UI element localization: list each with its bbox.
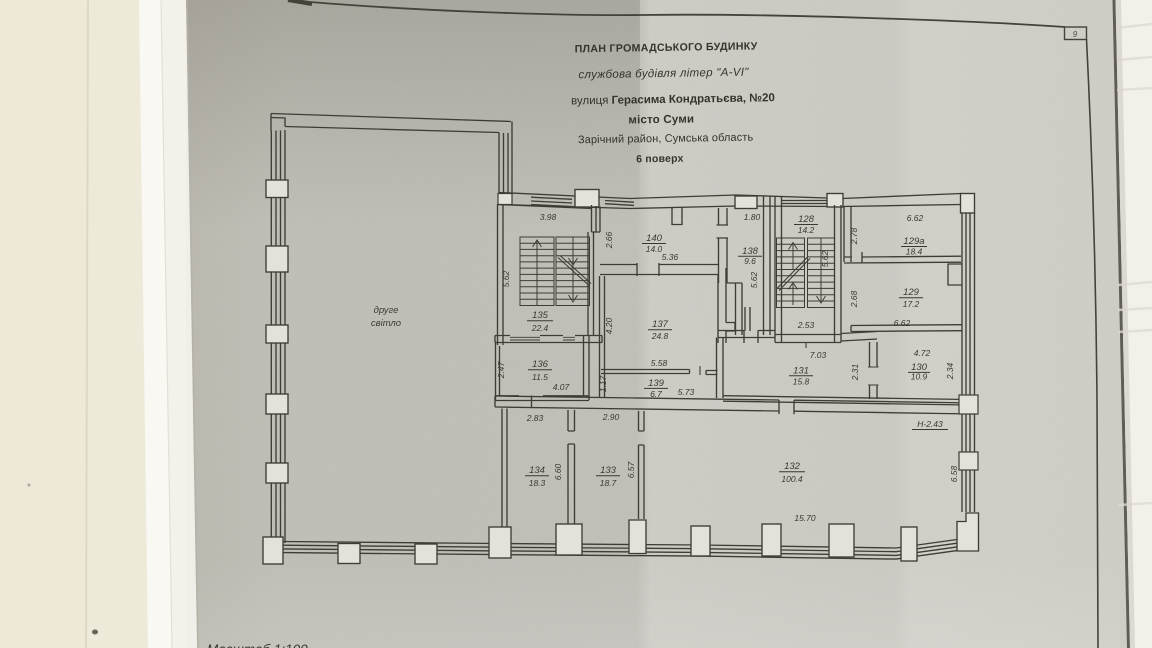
svg-text:100.4: 100.4 bbox=[781, 474, 803, 484]
svg-text:2.66: 2.66 bbox=[604, 231, 614, 249]
svg-text:світло: світло bbox=[371, 318, 401, 329]
svg-text:9: 9 bbox=[1073, 30, 1078, 39]
svg-text:15.70: 15.70 bbox=[794, 513, 816, 523]
svg-text:17.2: 17.2 bbox=[903, 299, 920, 309]
svg-text:місто Суми: місто Суми bbox=[628, 113, 694, 126]
svg-text:2.83: 2.83 bbox=[526, 413, 544, 423]
svg-text:6.7: 6.7 bbox=[650, 389, 662, 399]
svg-text:5.62: 5.62 bbox=[501, 270, 511, 287]
svg-text:137: 137 bbox=[652, 319, 669, 330]
svg-text:2.53: 2.53 bbox=[797, 320, 815, 330]
svg-text:135: 135 bbox=[532, 310, 549, 321]
svg-text:140: 140 bbox=[646, 233, 663, 244]
svg-text:14.0: 14.0 bbox=[646, 244, 663, 254]
svg-text:6 поверх: 6 поверх bbox=[636, 153, 684, 166]
svg-text:5.73: 5.73 bbox=[678, 387, 695, 397]
svg-text:128: 128 bbox=[798, 214, 815, 225]
svg-text:11.5: 11.5 bbox=[532, 372, 548, 382]
svg-text:5.62: 5.62 bbox=[749, 271, 759, 288]
svg-text:2.31: 2.31 bbox=[850, 363, 860, 381]
svg-text:15.8: 15.8 bbox=[793, 377, 810, 387]
svg-text:5.58: 5.58 bbox=[651, 358, 668, 368]
svg-text:1.17: 1.17 bbox=[598, 375, 608, 392]
svg-text:6.57: 6.57 bbox=[626, 461, 636, 478]
svg-text:2.78: 2.78 bbox=[849, 227, 859, 245]
svg-text:136: 136 bbox=[532, 359, 549, 370]
svg-text:2.68: 2.68 bbox=[849, 290, 859, 308]
svg-text:4.07: 4.07 bbox=[553, 382, 570, 392]
svg-text:6.58: 6.58 bbox=[949, 465, 959, 482]
svg-text:2.34: 2.34 bbox=[945, 362, 955, 380]
svg-text:6.62: 6.62 bbox=[894, 318, 911, 328]
svg-text:139: 139 bbox=[648, 378, 665, 389]
svg-text:22.4: 22.4 bbox=[531, 323, 549, 333]
svg-text:24.8: 24.8 bbox=[651, 331, 669, 341]
svg-text:3.98: 3.98 bbox=[540, 212, 557, 222]
svg-text:131: 131 bbox=[793, 366, 809, 377]
svg-text:133: 133 bbox=[600, 465, 617, 476]
svg-text:Н-2.43: Н-2.43 bbox=[917, 419, 943, 429]
svg-text:129: 129 bbox=[903, 287, 920, 298]
svg-text:7.03: 7.03 bbox=[810, 350, 827, 360]
svg-text:Масштаб 1:100: Масштаб 1:100 bbox=[207, 642, 308, 648]
svg-text:6.62: 6.62 bbox=[907, 213, 924, 223]
svg-text:1.80: 1.80 bbox=[744, 212, 761, 222]
svg-text:4.72: 4.72 bbox=[914, 348, 931, 358]
svg-text:132: 132 bbox=[784, 461, 801, 472]
svg-text:10.9: 10.9 bbox=[911, 372, 928, 382]
svg-text:4.20: 4.20 bbox=[604, 317, 614, 334]
svg-text:134: 134 bbox=[529, 465, 545, 476]
svg-text:18.4: 18.4 bbox=[906, 247, 923, 257]
svg-text:2.90: 2.90 bbox=[602, 412, 620, 422]
svg-text:18.3: 18.3 bbox=[529, 478, 546, 488]
svg-text:9.6: 9.6 bbox=[744, 256, 756, 266]
svg-text:18.7: 18.7 bbox=[600, 478, 617, 488]
svg-text:129а: 129а bbox=[903, 236, 924, 247]
svg-text:друге: друге bbox=[374, 305, 399, 316]
svg-text:14.2: 14.2 bbox=[798, 225, 815, 235]
svg-text:5.62: 5.62 bbox=[820, 250, 830, 267]
svg-text:2.47: 2.47 bbox=[496, 361, 506, 379]
svg-text:6.60: 6.60 bbox=[553, 463, 563, 480]
svg-text:5.36: 5.36 bbox=[662, 252, 679, 262]
